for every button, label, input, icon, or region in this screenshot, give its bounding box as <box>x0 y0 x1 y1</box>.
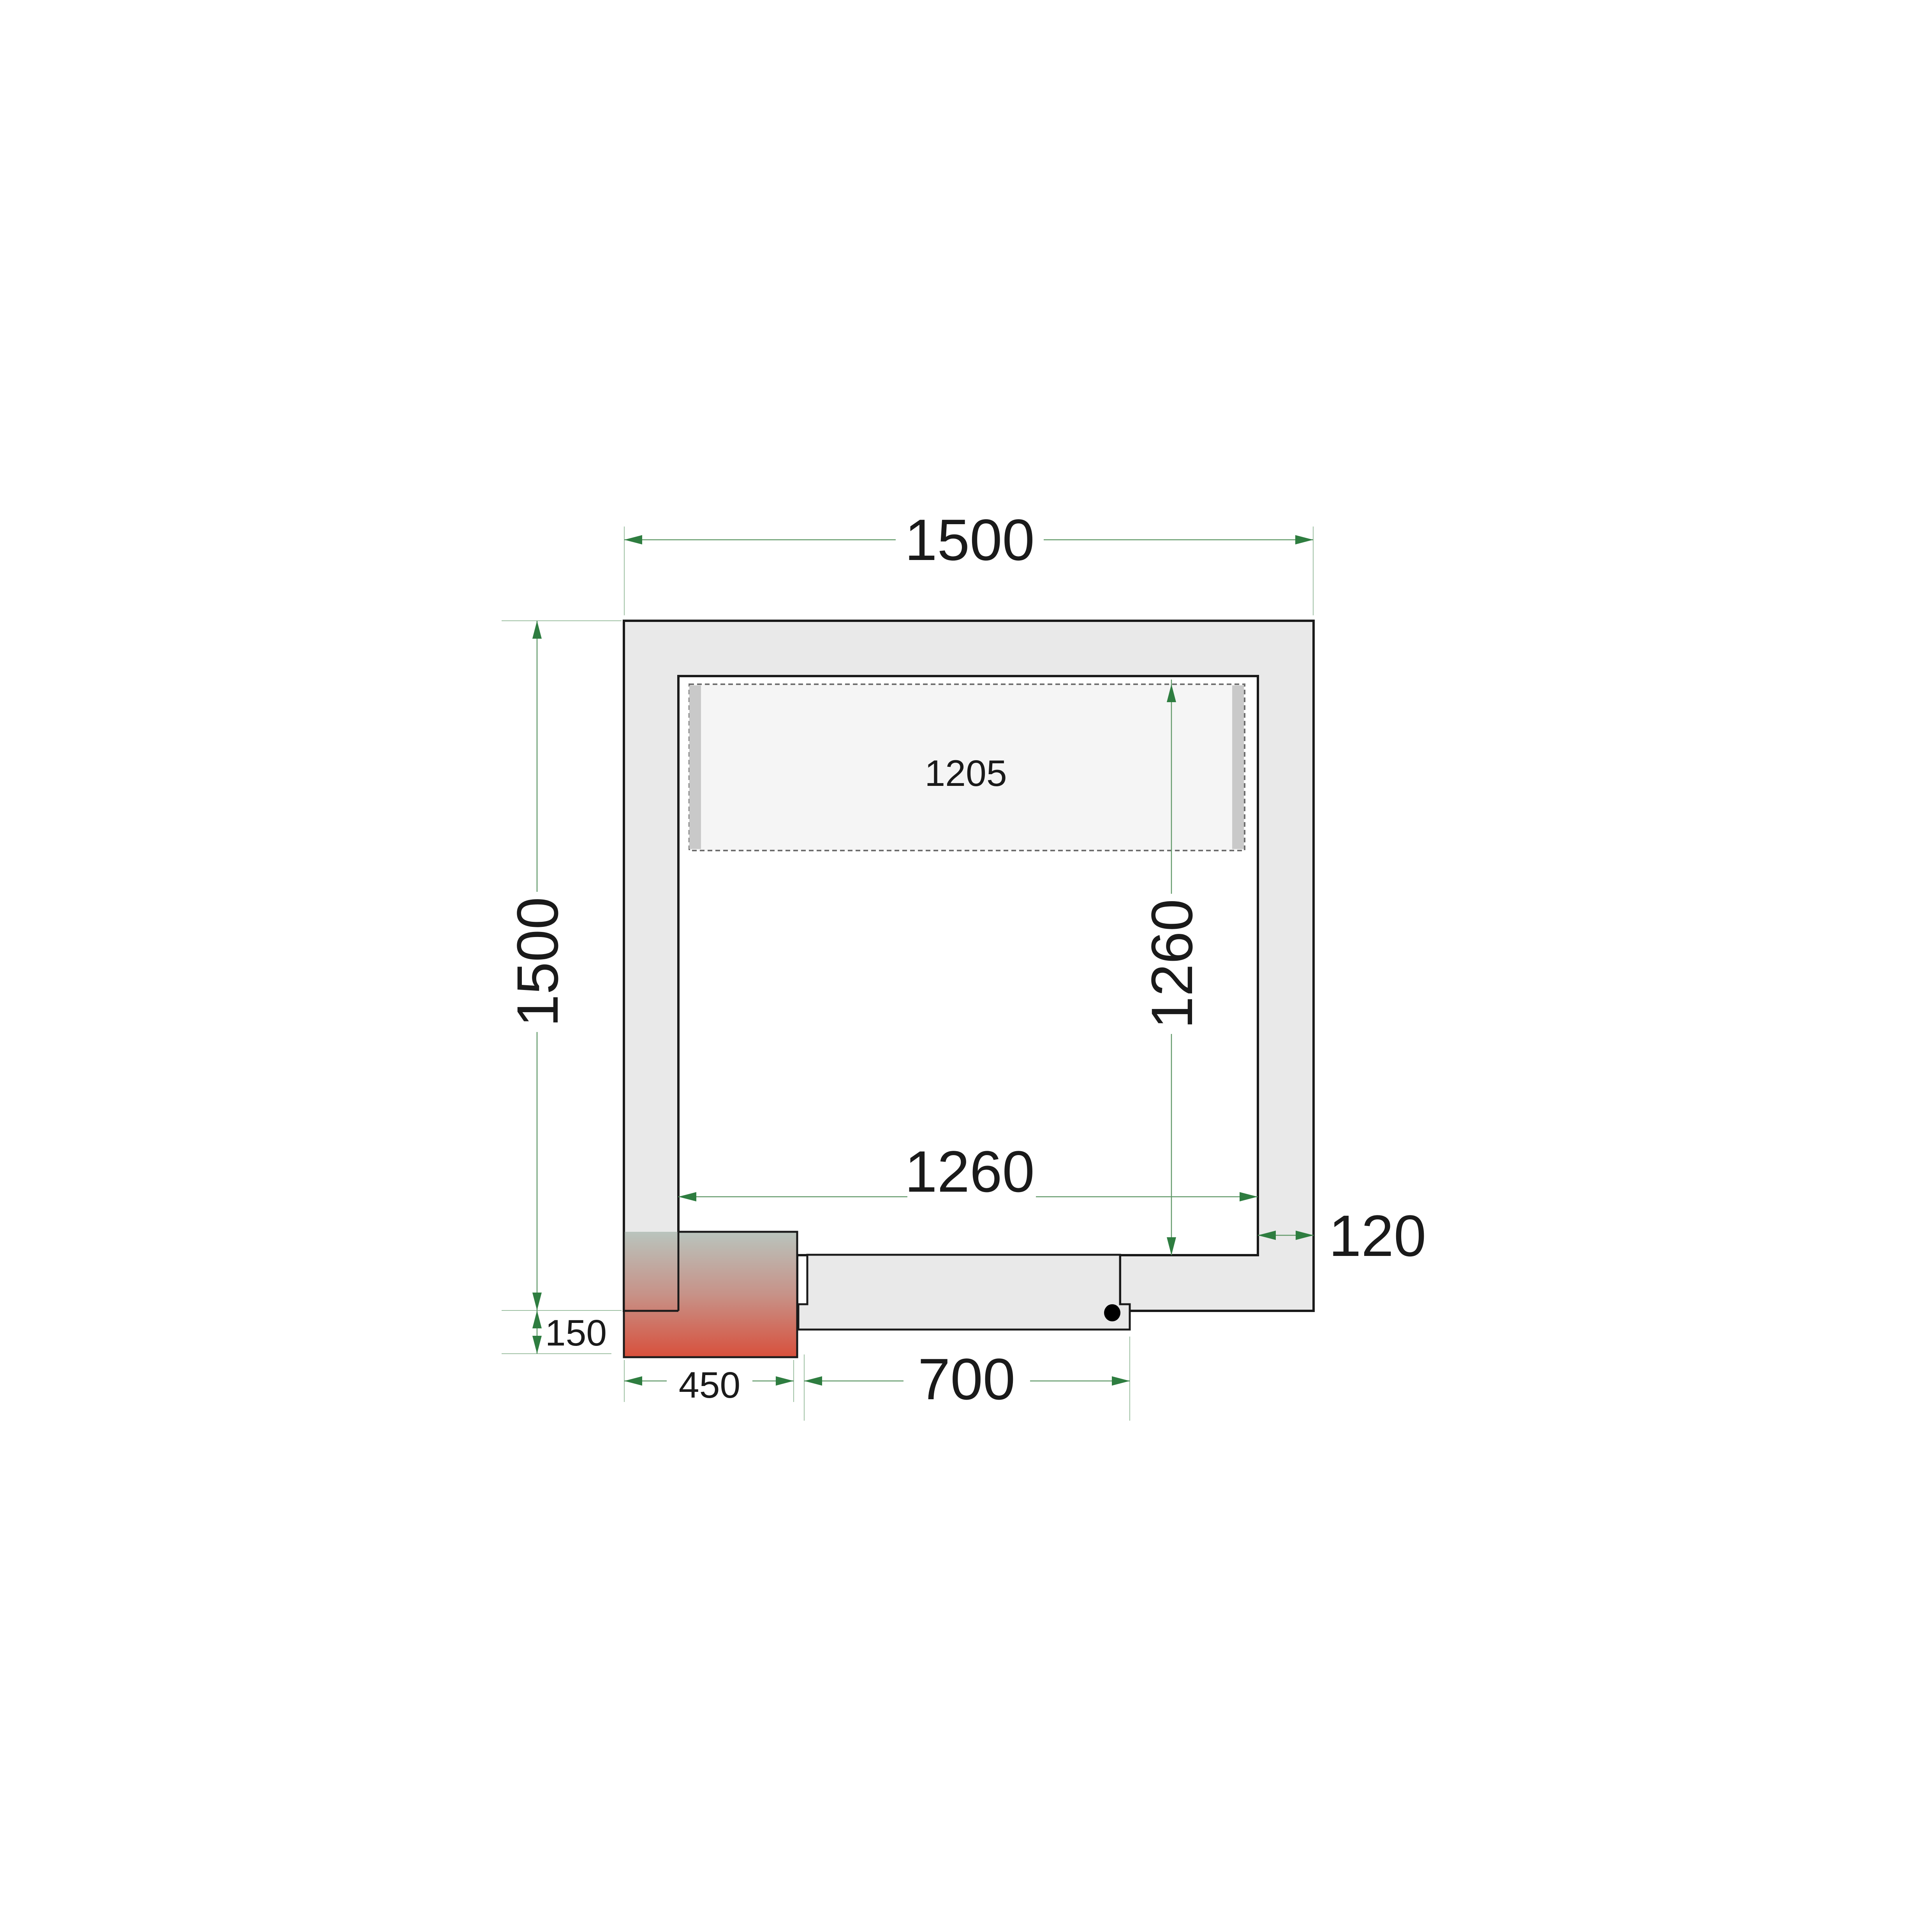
arrow-left-icon <box>804 1376 822 1386</box>
inner-width-label: 1260 <box>905 1139 1035 1204</box>
dim-unit-offset: 150 <box>502 1310 611 1354</box>
condensing-unit <box>624 1232 797 1357</box>
arrow-left-icon <box>678 1192 696 1201</box>
door-handle-dot <box>1104 1304 1120 1321</box>
arrow-up-icon <box>532 1310 542 1328</box>
outer-height-label: 1500 <box>505 897 570 1027</box>
arrow-left-icon <box>624 535 642 544</box>
arrow-right-icon <box>1240 1192 1257 1201</box>
floorplan-page: 1205 1500 1500 1260 1260 <box>0 0 1932 1932</box>
unit-offset-label: 150 <box>545 1312 607 1354</box>
dim-outer-width: 1500 <box>624 507 1313 615</box>
arrow-down-icon <box>532 1336 542 1354</box>
evaporator-left-strip <box>689 685 701 849</box>
door-width-label: 700 <box>918 1346 1015 1412</box>
arrow-down-icon <box>1167 1237 1176 1255</box>
arrow-right-icon <box>776 1376 794 1386</box>
condensing-unit-body <box>624 1232 797 1357</box>
evaporator-footprint: 1205 <box>689 684 1245 851</box>
door-leaf <box>798 1255 1130 1330</box>
arrow-up-icon <box>532 621 542 639</box>
arrow-right-icon <box>1295 535 1313 544</box>
outer-width-label: 1500 <box>905 507 1035 572</box>
dim-unit-width: 450 <box>624 1360 794 1406</box>
arrow-right-icon <box>1112 1376 1130 1386</box>
arrow-down-icon <box>532 1293 542 1310</box>
unit-width-label: 450 <box>679 1365 741 1406</box>
evaporator-right-strip <box>1232 685 1244 849</box>
evaporator-width-label: 1205 <box>925 753 1007 794</box>
dim-door-width: 700 <box>804 1337 1130 1421</box>
floorplan-canvas: 1205 1500 1500 1260 1260 <box>0 0 1932 1932</box>
dim-inner-width: 1260 <box>678 1139 1257 1204</box>
arrow-left-icon <box>624 1376 642 1386</box>
inner-height-label: 1260 <box>1139 899 1205 1029</box>
wall-thickness-label: 120 <box>1329 1203 1426 1268</box>
dim-outer-height: 1500 <box>502 621 622 1310</box>
